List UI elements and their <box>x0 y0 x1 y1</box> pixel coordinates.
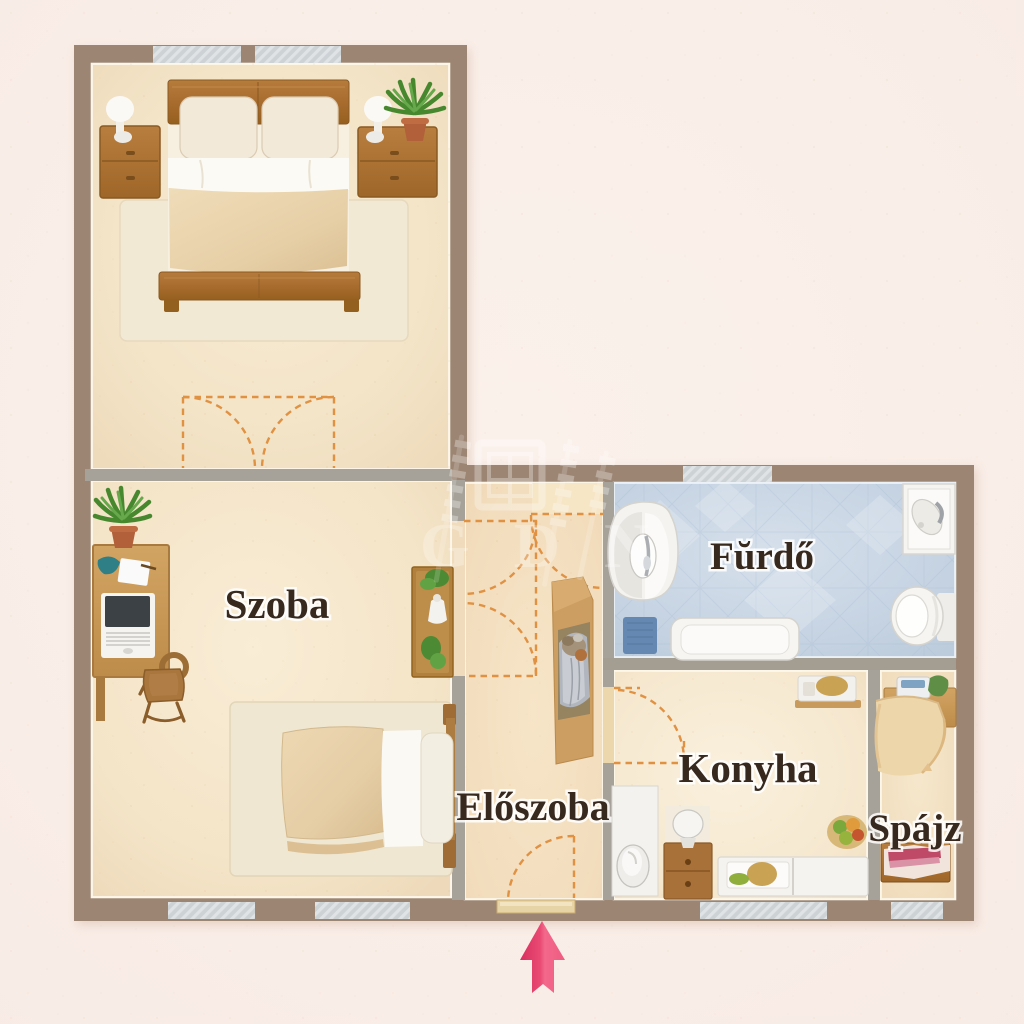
svg-text:Spájz: Spájz <box>868 807 961 850</box>
svg-text:Előszoba: Előszoba <box>456 784 609 829</box>
svg-text:Fŭrdő: Fŭrdő <box>710 535 814 578</box>
svg-text:GDN: GDN <box>420 510 694 581</box>
svg-text:Konyha: Konyha <box>679 745 818 791</box>
svg-text:Szoba: Szoba <box>225 581 330 627</box>
